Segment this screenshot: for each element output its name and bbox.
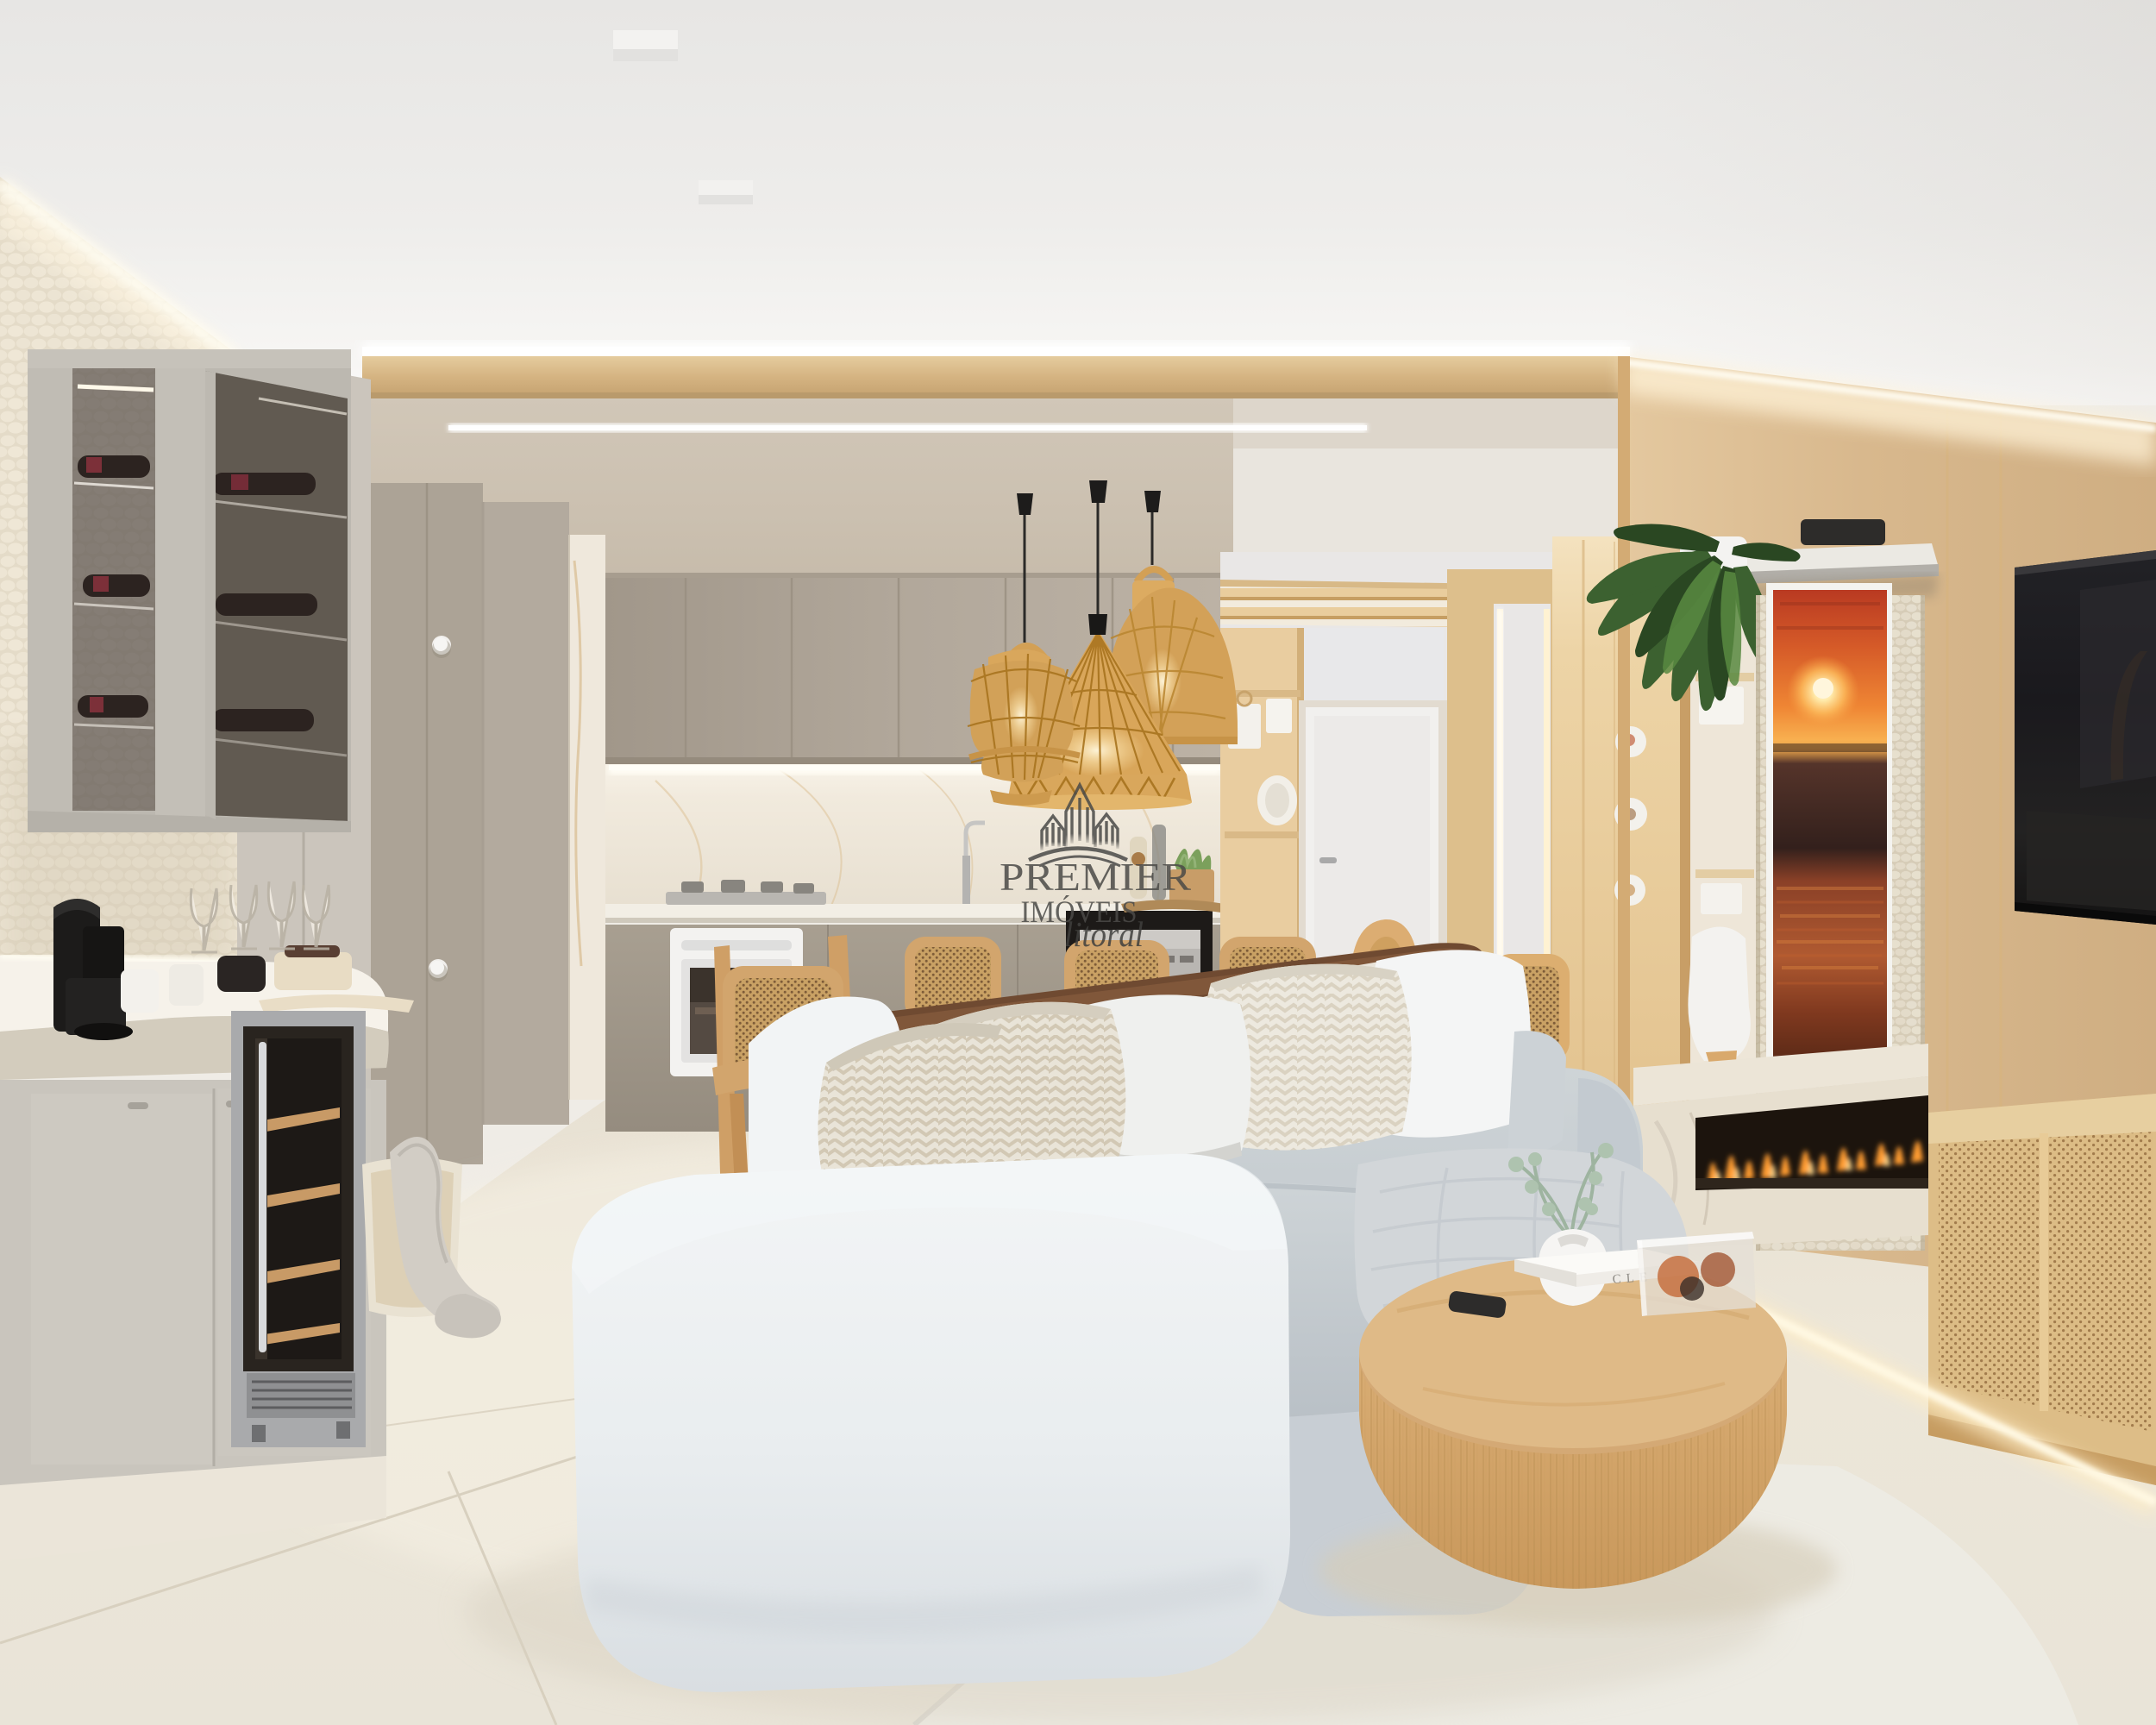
svg-text:PREMIER: PREMIER	[1000, 856, 1191, 899]
svg-text:litoral: litoral	[1064, 914, 1144, 954]
